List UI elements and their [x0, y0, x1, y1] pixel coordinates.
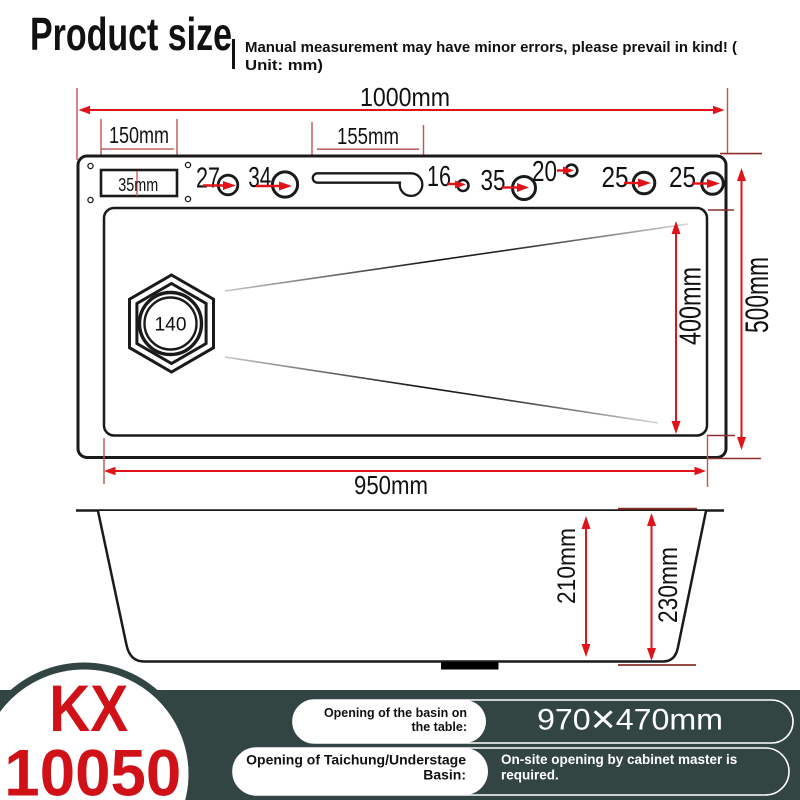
svg-text:27: 27 [196, 163, 220, 195]
svg-text:34: 34 [248, 162, 271, 194]
svg-text:On-site opening by cabinet mas: On-site opening by cabinet master is [501, 752, 737, 767]
svg-text:Manual measurement may have mi: Manual measurement may have minor errors… [245, 40, 737, 56]
svg-text:210mm: 210mm [553, 528, 581, 604]
svg-text:950mm: 950mm [354, 470, 428, 500]
svg-text:required.: required. [501, 768, 559, 783]
svg-text:35: 35 [481, 165, 506, 197]
svg-text:150mm: 150mm [109, 122, 169, 148]
svg-text:Product size: Product size [30, 8, 232, 60]
svg-text:Opening of Taichung/Understage: Opening of Taichung/Understage [246, 752, 466, 768]
svg-text:Basin:: Basin: [423, 767, 466, 783]
svg-text:10050: 10050 [4, 736, 181, 800]
svg-text:the table:: the table: [411, 720, 467, 734]
svg-text:Opening of the basin on: Opening of the basin on [324, 706, 467, 720]
svg-text:155mm: 155mm [337, 123, 399, 149]
svg-text:140: 140 [155, 314, 187, 336]
svg-text:1000mm: 1000mm [360, 82, 450, 112]
svg-text:25: 25 [602, 162, 629, 194]
svg-text:400mm: 400mm [673, 267, 708, 345]
svg-text:35mm: 35mm [118, 175, 158, 195]
svg-text:Unit: mm): Unit: mm) [245, 58, 323, 74]
svg-text:500mm: 500mm [739, 257, 775, 333]
svg-text:25: 25 [669, 162, 696, 194]
svg-text:KX: KX [49, 671, 128, 745]
svg-text:230mm: 230mm [653, 547, 683, 623]
svg-text:970×470mm: 970×470mm [537, 698, 723, 742]
svg-text:16: 16 [427, 161, 451, 193]
svg-text:20: 20 [532, 156, 557, 188]
